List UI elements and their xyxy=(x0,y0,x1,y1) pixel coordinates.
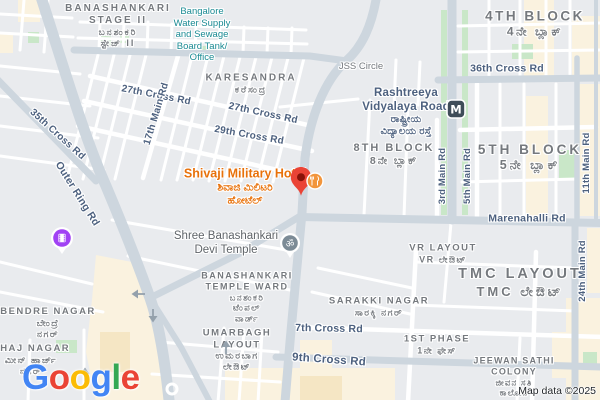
label-marenahalli-rd: Marenahalli Rd xyxy=(488,213,565,226)
label-4th-block: 4TH BLOCK4ನೇ ಬ್ಲಾಕ್ xyxy=(485,8,585,39)
label-tmc-layout: TMC LAYOUTTMC ಲೇಔಟ್ xyxy=(458,266,582,300)
label-8th-block: 8TH BLOCK8ನೇ ಬ್ಲಾಕ್ xyxy=(354,142,435,168)
google-logo-letter: l xyxy=(111,358,120,398)
label-karesandra: KARESANDRAಕರೆಸಂದ್ರ xyxy=(205,72,296,95)
label-vr-layout: VR LAYOUTVR ಲೇಔಟ್ xyxy=(409,243,477,266)
label-27th-cross-rd-east: 27th Cross Rd xyxy=(227,101,298,128)
map-attribution: Map data ©2025 xyxy=(518,385,596,397)
label-banashankari-stage-ii: BANASHANKARISTAGE IIಬನಶಂಕರಿಸ್ಟೇಜ್ II xyxy=(65,3,171,49)
label-1st-phase: 1ST PHASE1ನೇ ಫೇಸ್ xyxy=(404,334,470,357)
svg-text:ॐ: ॐ xyxy=(286,239,295,250)
label-35th-cross-rd: 35th Cross Rd xyxy=(27,107,87,163)
label-7th-cross-rd: 7th Cross Rd xyxy=(295,322,363,336)
label-3rd-main-rd: 3rd Main Rd xyxy=(437,148,449,205)
label-29th-cross-rd: 29th Cross Rd xyxy=(213,124,284,148)
google-logo-letter: o xyxy=(70,358,91,398)
label-5th-block: 5TH BLOCK5ನೇ ಬ್ಲಾಕ್ xyxy=(478,142,582,174)
label-banashankari-temple-ward: BANASHANKARITEMPLE WARDಬನಶಂಕರಿಟೆಂಪಲ್ವಾರ್… xyxy=(201,270,293,323)
label-umarbagh-layout: UMARBAGHLAYOUTಉಮರಬಾಗಲೇಔಟ್ xyxy=(203,327,271,372)
google-logo[interactable]: Google xyxy=(22,358,140,398)
map-overlay: BANASHANKARISTAGE IIಬನಶಂಕರಿಸ್ಟೇಜ್ IIBang… xyxy=(0,0,600,400)
label-24th-main-rd: 24th Main Rd xyxy=(577,240,589,302)
map-canvas[interactable]: BANASHANKARISTAGE IIಬನಶಂಕರಿಸ್ಟೇಜ್ IIBang… xyxy=(0,0,600,400)
label-9th-cross-rd: 9th Cross Rd xyxy=(292,350,367,369)
svg-text:M: M xyxy=(450,103,461,117)
label-5th-main-rd: 5th Main Rd xyxy=(462,148,474,204)
google-logo-letter: g xyxy=(91,358,112,398)
google-logo-letter: G xyxy=(22,358,49,398)
label-bangalore-water-supply[interactable]: BangaloreWater Supplyand SewageBoard Tan… xyxy=(174,6,231,64)
label-sarakki-nagar: SARAKKI NAGARಸಾರಕ್ಕಿ ನಗರ್ xyxy=(329,296,429,319)
label-bendre-nagar: BENDRE NAGARಬೇಂದ್ರೆನಗರ್ xyxy=(0,306,96,340)
label-jss-circle: JSS Circle xyxy=(339,61,383,73)
label-outer-ring-rd: Outer Ring Rd xyxy=(52,159,102,228)
label-shree-banashankari-devi-temple[interactable]: Shree BanashankariDevi Temple xyxy=(174,229,278,257)
google-logo-letter: e xyxy=(121,358,140,398)
label-shivaji-military-hotel[interactable]: Shivaji Military Hotelಶಿವಾಜಿ ಮಿಲಿಟರಿಹೋಟೆ… xyxy=(184,167,306,208)
label-rashtreeya-vidyalaya-road: RashtreeyaVidyalaya Roadರಾಷ್ಟ್ರೀಯವಿದ್ಯಾಲ… xyxy=(362,86,450,138)
label-36th-cross-rd: 36th Cross Rd xyxy=(470,63,544,76)
label-11th-main-rd: 11th Main Rd xyxy=(581,133,593,194)
google-logo-letter: o xyxy=(49,358,70,398)
